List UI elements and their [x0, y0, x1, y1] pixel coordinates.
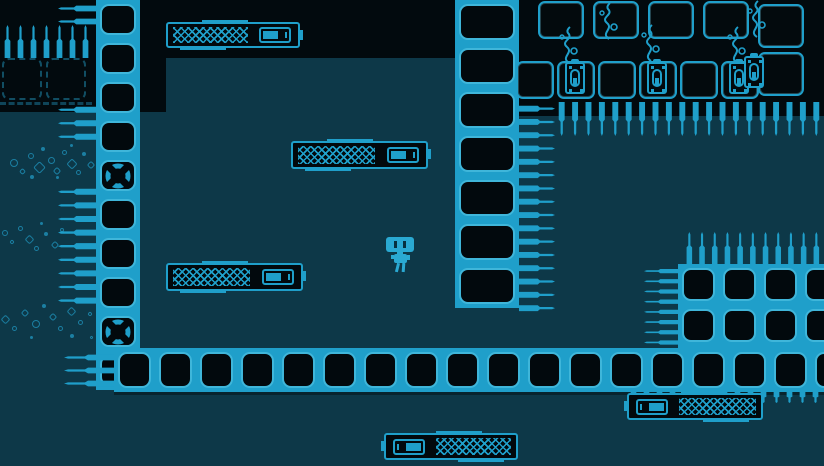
wall-tile — [405, 352, 438, 388]
bubble — [41, 147, 45, 151]
torch-rivet-icon — [580, 66, 583, 69]
torch-rivet-icon — [748, 83, 751, 86]
spikes-block-top — [697, 232, 708, 264]
battery-icon — [636, 399, 668, 415]
wall-tile — [487, 352, 520, 388]
torch-fuel — [655, 78, 659, 85]
bubble — [49, 313, 57, 321]
zipper-platform-4 — [627, 393, 763, 420]
wall-tile — [815, 352, 824, 388]
battery-terminal — [640, 404, 642, 410]
platform-step-top — [202, 261, 248, 265]
wall-tile — [764, 268, 797, 301]
bubble — [87, 311, 93, 317]
spikes-wall-right — [519, 156, 555, 167]
bubble — [18, 226, 23, 231]
spikes-block-top — [786, 232, 797, 264]
bubble — [34, 246, 39, 251]
torch-fuel — [737, 78, 741, 85]
wall-tile — [528, 352, 561, 388]
wall-tile — [651, 352, 684, 388]
wall-tile — [459, 92, 515, 128]
battery-terminal — [288, 274, 290, 280]
torch-device — [565, 62, 585, 94]
torch-rivet-icon — [733, 66, 736, 69]
wall-tile — [692, 352, 725, 388]
bubble — [19, 168, 26, 175]
spikes-block-top — [684, 232, 695, 264]
wall-tile — [610, 352, 643, 388]
spikes-block-left — [644, 267, 678, 275]
spikes-block-left — [644, 328, 678, 336]
platform-step-bottom — [180, 46, 226, 50]
spikes-wall-left-low — [58, 200, 96, 212]
spikes-wall-right — [519, 303, 555, 314]
bubble — [56, 176, 59, 179]
outline-tile — [758, 52, 804, 96]
crosshatch-texture — [679, 398, 756, 415]
torch-fuel — [752, 72, 756, 79]
spikes-block-top — [773, 232, 784, 264]
platform-end-nub — [426, 149, 431, 159]
spikes-block-top — [760, 232, 771, 264]
battery-cell — [263, 31, 278, 39]
robot-eye — [403, 241, 406, 248]
bubble — [30, 336, 33, 339]
bubble — [33, 161, 46, 174]
spikes-wall-right — [519, 130, 555, 141]
torch-rivet-icon — [662, 66, 665, 69]
wall-tile — [100, 238, 136, 269]
robot-arm — [407, 255, 410, 260]
wall-right — [455, 0, 519, 308]
spikes-block-top — [735, 232, 746, 264]
outline-tile — [516, 61, 554, 99]
wall-tile — [100, 199, 136, 230]
zipper-platform-1 — [166, 22, 300, 48]
crosshatch-texture — [298, 146, 375, 164]
spikes-wall-right — [519, 143, 555, 154]
bubble — [53, 167, 61, 175]
robot-leg — [395, 263, 400, 272]
bubble — [44, 232, 48, 236]
spikes-block-top — [748, 232, 759, 264]
wall-tile — [282, 352, 315, 388]
spikes-block-left — [644, 298, 678, 306]
robot-eye — [394, 241, 397, 248]
wall-tile — [459, 224, 515, 260]
torch-rivet-icon — [744, 89, 747, 92]
torch-knob — [750, 53, 758, 58]
bubble — [40, 222, 43, 225]
battery-icon — [393, 439, 425, 455]
spikes-wall-right — [519, 289, 555, 300]
platform-end-nub — [301, 271, 306, 281]
wall-left — [96, 0, 140, 390]
crosshatch-texture — [173, 27, 248, 43]
ghost-tile — [2, 58, 42, 100]
bubble — [9, 239, 15, 245]
bubble — [67, 307, 77, 317]
spikes-wall-right — [519, 183, 555, 194]
wall-tile — [723, 268, 756, 301]
battery-icon — [259, 27, 291, 43]
wall-tile — [100, 316, 136, 347]
spikes-block-left — [644, 338, 678, 346]
bubble — [25, 235, 35, 245]
torch-rivet-icon — [651, 66, 654, 69]
wall-tile — [118, 352, 151, 388]
platform-step-bottom — [305, 167, 351, 171]
smoke-wisp-icon — [596, 2, 622, 40]
battery-cell — [391, 151, 406, 159]
spikes-wall-left-mid — [58, 118, 96, 130]
torch-rivet-icon — [651, 89, 654, 92]
spikes-wall-right — [519, 116, 555, 127]
wall-tile — [805, 309, 824, 342]
bubble — [10, 159, 18, 167]
bubble — [21, 309, 29, 317]
spikes-wall-left-mid — [58, 131, 96, 143]
battery-icon — [387, 147, 419, 163]
spikes-block-left — [644, 287, 678, 295]
smoke-wisp-icon — [744, 0, 770, 38]
smoke-wisp-icon — [638, 24, 664, 62]
spikes-block-left — [644, 308, 678, 316]
bubble — [58, 326, 63, 331]
outline-tile — [598, 61, 636, 99]
platform-step-bottom — [458, 458, 504, 462]
battery-icon — [262, 269, 294, 285]
torch-rivet-icon — [569, 89, 572, 92]
wall-tile — [100, 277, 136, 308]
zipper-platform-2 — [291, 141, 428, 169]
bubble — [51, 241, 59, 249]
platform-step-bottom — [703, 418, 749, 422]
wall-tile — [323, 352, 356, 388]
wall-tile — [100, 43, 136, 74]
bubble — [87, 161, 95, 169]
wall-tile — [364, 352, 397, 388]
floor — [114, 348, 824, 392]
battery-terminal — [397, 444, 399, 450]
robot-leg — [402, 263, 405, 272]
wall-tile — [100, 160, 136, 191]
crosshatch-texture — [436, 438, 511, 455]
spikes-wall-right — [519, 223, 555, 234]
spikes-wall-right — [519, 249, 555, 260]
wall-tile — [774, 352, 807, 388]
bubble — [32, 320, 40, 328]
robot-body — [394, 254, 407, 263]
block-bottom-right — [678, 264, 824, 348]
battery-terminal — [285, 32, 287, 38]
wall-tile — [446, 352, 479, 388]
bubble — [66, 158, 77, 169]
wall-tile — [723, 309, 756, 342]
wall-tile — [569, 352, 602, 388]
wall-tile — [805, 268, 824, 301]
wall-tile — [459, 180, 515, 216]
bubble — [30, 175, 34, 179]
platform-step-bottom — [180, 289, 226, 293]
spikes-wall-right — [519, 236, 555, 247]
battery-cell — [266, 273, 281, 281]
spikes-block-top — [709, 232, 720, 264]
wall-tile — [682, 268, 715, 301]
battery-cell — [406, 443, 421, 451]
torch-rivet-icon — [759, 83, 762, 86]
spikes-wall-right — [519, 263, 555, 274]
game-viewport[interactable] — [0, 0, 824, 466]
spikes-wall-right — [519, 209, 555, 220]
bubble — [70, 144, 73, 147]
torch-rivet-icon — [580, 89, 583, 92]
platform-step-top — [202, 20, 248, 24]
bubble — [1, 315, 11, 325]
wall-tile — [241, 352, 274, 388]
torch-rivet-icon — [759, 60, 762, 63]
torch-rivet-icon — [733, 89, 736, 92]
wall-tile — [459, 268, 515, 304]
bubble — [60, 228, 64, 232]
spikes-wall-right — [519, 276, 555, 287]
wall-tile — [100, 121, 136, 152]
wall-tile — [159, 352, 192, 388]
bubble — [2, 230, 8, 236]
spikes-wall-right — [519, 196, 555, 207]
wall-tile — [200, 352, 233, 388]
zipper-platform-3 — [166, 263, 303, 291]
torch-rivet-icon — [569, 66, 572, 69]
wall-tile — [682, 309, 715, 342]
bubble — [89, 335, 93, 339]
bubble — [82, 152, 86, 156]
spikes-block-left — [644, 277, 678, 285]
bubble — [70, 334, 74, 338]
zipper-platform-5 — [384, 433, 518, 460]
spikes-wall-left-low — [58, 281, 96, 293]
platform-end-nub — [298, 30, 303, 40]
platform-end-nub — [381, 441, 386, 451]
torch-rivet-icon — [662, 89, 665, 92]
battery-terminal — [413, 152, 415, 158]
spikes-wall-right — [519, 170, 555, 181]
platform-step-top — [327, 139, 373, 143]
torch-device — [647, 62, 667, 94]
torch-fuel — [573, 78, 577, 85]
battery-cell — [649, 403, 664, 411]
platform-step-top — [436, 431, 482, 435]
wall-tile — [764, 309, 797, 342]
wall-tile — [733, 352, 766, 388]
spikes-block-top — [798, 232, 809, 264]
bubble — [48, 157, 55, 164]
wall-tile — [459, 48, 515, 84]
robot-character — [386, 237, 416, 272]
bubble — [42, 304, 46, 308]
bubble — [62, 150, 67, 155]
bubble — [76, 170, 81, 175]
wall-tile — [100, 82, 136, 113]
bubble — [78, 320, 83, 325]
bubble — [28, 153, 34, 159]
spikes-block-top — [722, 232, 733, 264]
platform-step-top — [681, 391, 727, 395]
wall-tile — [459, 4, 515, 40]
bubble — [12, 326, 17, 331]
outline-tile — [680, 61, 718, 99]
robot-arm — [391, 255, 394, 259]
platform-end-nub — [624, 401, 629, 411]
ghost-tile — [46, 58, 86, 100]
smoke-wisp-icon — [556, 26, 582, 64]
robot-head — [386, 237, 414, 252]
spikes-block-left — [644, 318, 678, 326]
wall-tile — [459, 136, 515, 172]
wall-tile — [100, 4, 136, 35]
spikes-block-top — [811, 232, 822, 264]
crosshatch-texture — [173, 268, 250, 286]
